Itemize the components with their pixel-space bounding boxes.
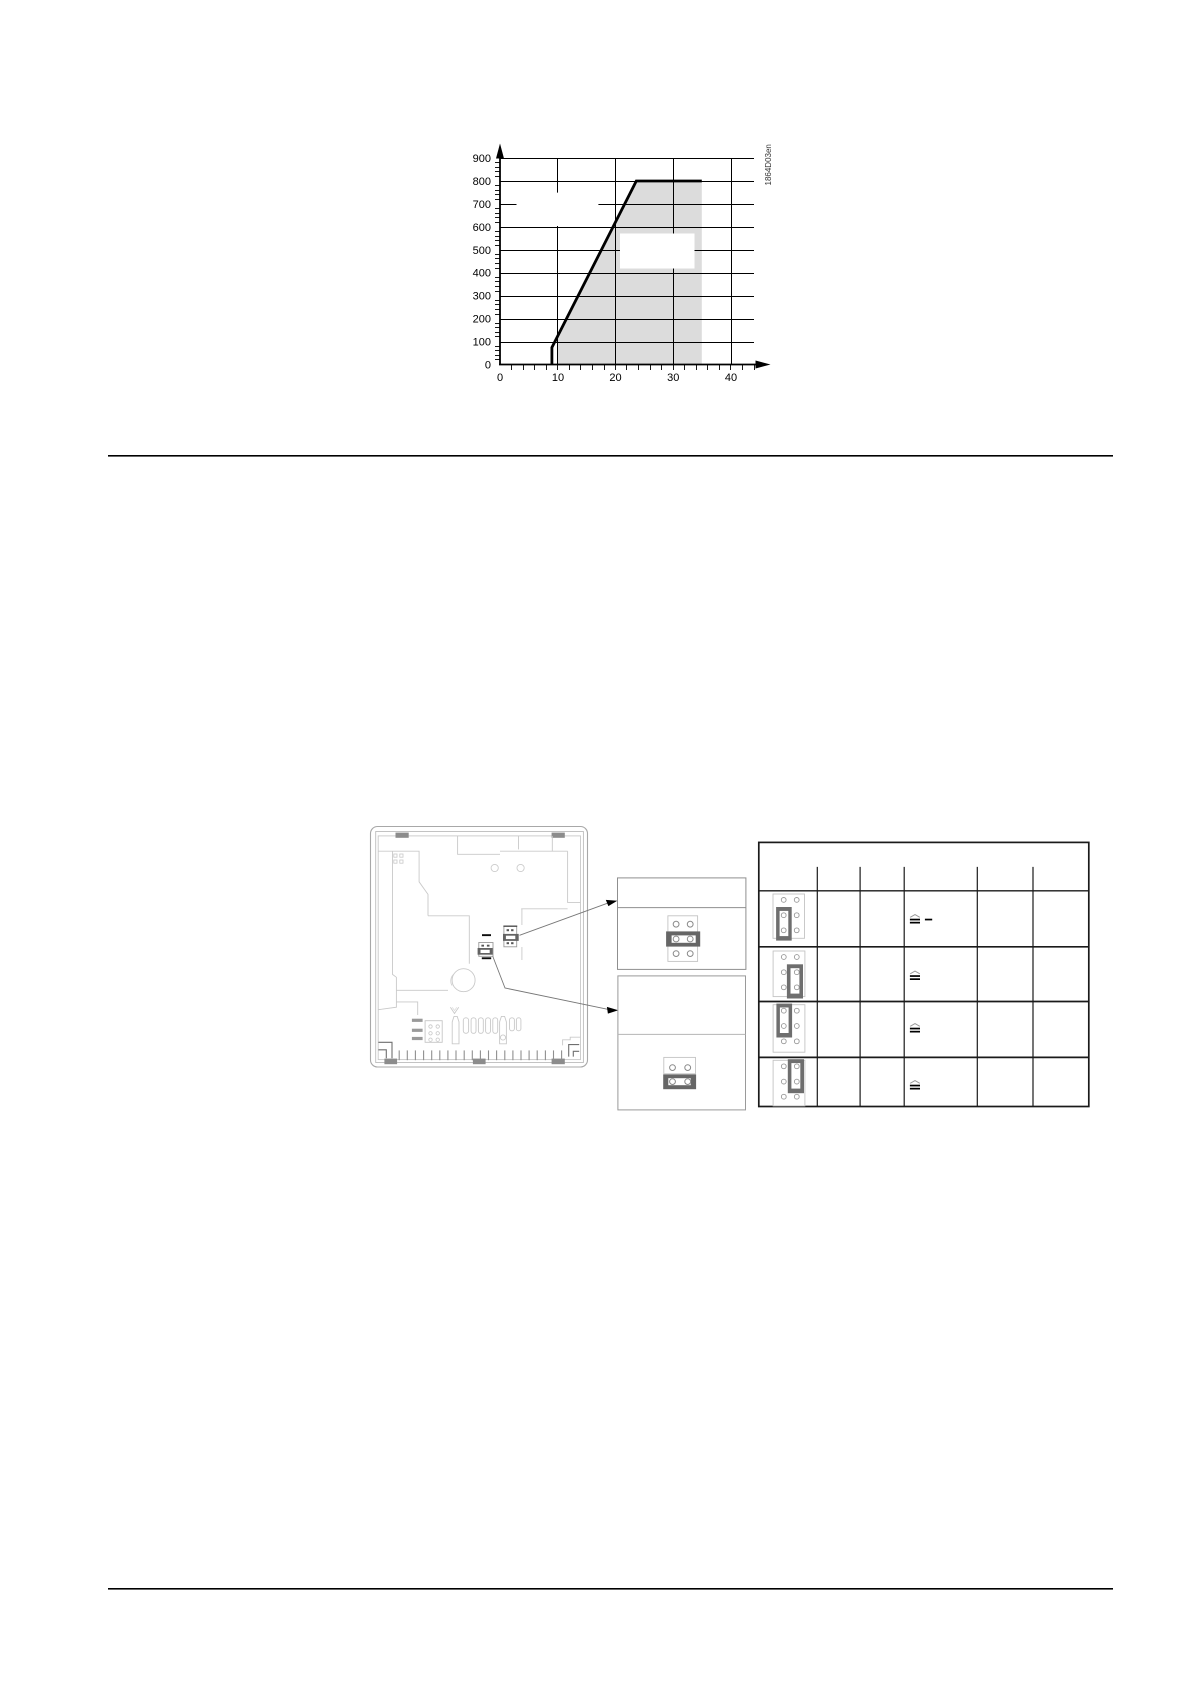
svg-text:0: 0 bbox=[497, 372, 503, 384]
svg-text:800: 800 bbox=[473, 176, 491, 188]
svg-text:700: 700 bbox=[473, 199, 491, 211]
svg-text:40: 40 bbox=[725, 372, 737, 384]
svg-text:100: 100 bbox=[473, 337, 491, 349]
svg-text:20: 20 bbox=[609, 372, 621, 384]
svg-text:900: 900 bbox=[473, 153, 491, 165]
svg-text:10: 10 bbox=[552, 372, 564, 384]
svg-text:200: 200 bbox=[473, 314, 491, 326]
svg-text:400: 400 bbox=[473, 268, 491, 280]
svg-text:1864D03en: 1864D03en bbox=[764, 144, 773, 185]
svg-text:500: 500 bbox=[473, 245, 491, 257]
svg-text:30: 30 bbox=[667, 372, 679, 384]
svg-text:0: 0 bbox=[485, 360, 491, 372]
svg-text:600: 600 bbox=[473, 222, 491, 234]
svg-text:300: 300 bbox=[473, 291, 491, 303]
